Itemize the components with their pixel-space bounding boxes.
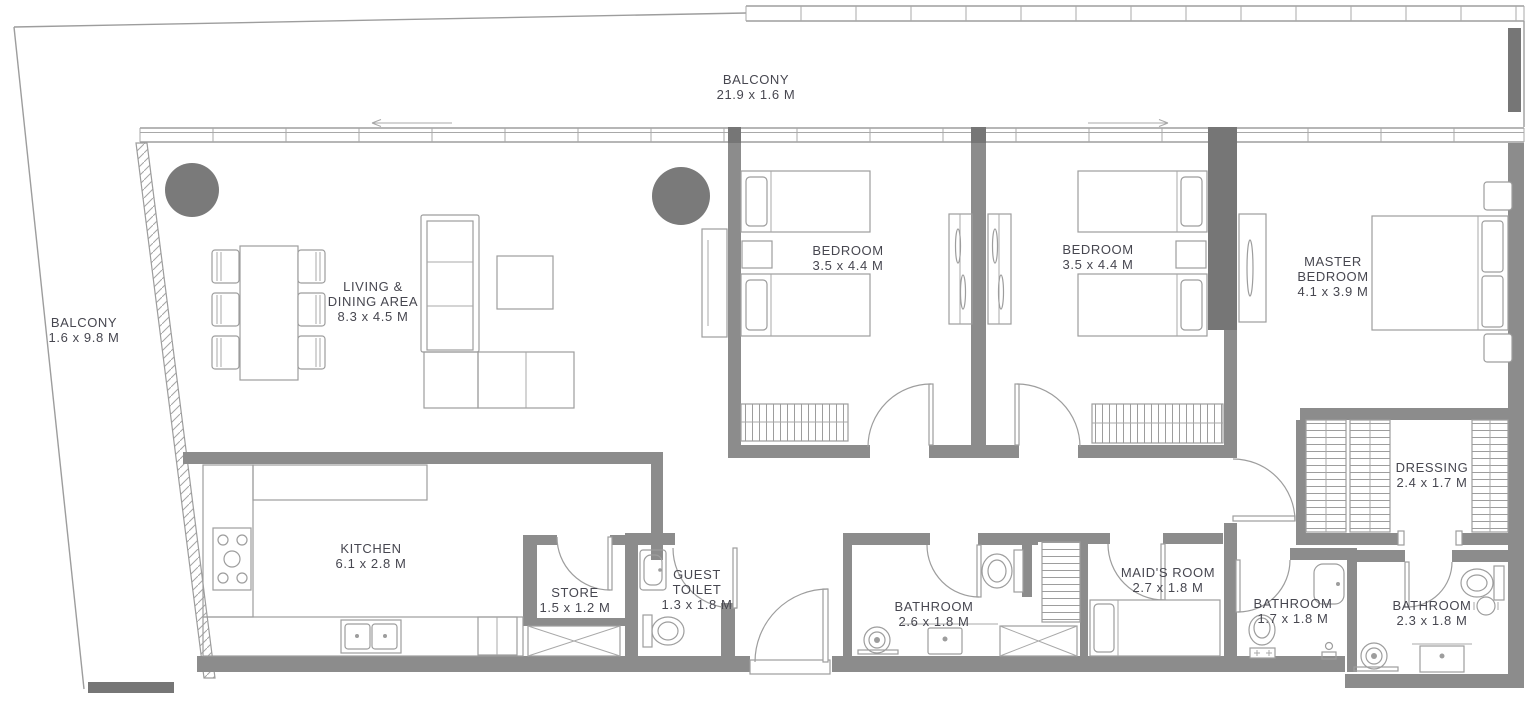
bedroom1-label: BEDROOM <box>812 243 883 258</box>
dressing-left-wall <box>1296 420 1306 533</box>
master-bedroom-furniture <box>1239 182 1512 362</box>
store-fixtures <box>528 626 620 656</box>
entrance-door-leaf <box>823 589 828 662</box>
north-window-band <box>140 120 1524 152</box>
bedroom1-nightstand <box>742 241 772 268</box>
shaft-top-wall <box>1038 533 1082 542</box>
left-balcony-end-wall <box>88 682 174 693</box>
floor-plan-drawing: BALCONY 21.9 x 1.6 M BALCONY 1.6 x 9.8 M… <box>0 0 1537 704</box>
bedroom2-furniture <box>988 171 1223 443</box>
top-railing-rails <box>746 6 1524 21</box>
sliding-door-arrow-right <box>1088 120 1168 127</box>
dining-table <box>240 246 298 380</box>
balcony-top-label: BALCONY <box>723 72 789 87</box>
bedroom2-door-leaf <box>1015 384 1019 445</box>
bedroom1-door-swing <box>868 384 931 447</box>
living-dining-dims: 8.3 x 4.5 M <box>338 309 409 324</box>
bedroom2-door-swing <box>1017 384 1080 447</box>
master-tv-unit <box>1239 214 1266 322</box>
wall-master-hall-lower <box>1224 523 1237 672</box>
south-wall-west <box>197 656 750 672</box>
dressing-door-jamb-right <box>1456 531 1462 545</box>
maid-bed <box>1090 600 1220 656</box>
balcony-left-dims: 1.6 x 9.8 M <box>49 330 120 345</box>
wall-bedroom1-bedroom2 <box>971 143 986 445</box>
bedroom2-dims: 3.5 x 4.4 M <box>1063 257 1134 272</box>
master-nightstand-bottom <box>1484 334 1512 362</box>
bath-master-top-wall-b <box>1452 550 1508 562</box>
balcony-left-edge <box>14 27 84 689</box>
bath-master-top-wall-a <box>1357 550 1405 562</box>
kitchen-label: KITCHEN <box>340 541 401 556</box>
bathroom-maid-label: BATHROOM <box>1254 596 1333 611</box>
master-hall-door-swing <box>1233 459 1295 521</box>
bath-maid-door-leaf <box>1236 560 1240 612</box>
entrance-door-swing <box>755 589 828 662</box>
bedroom1-sliding-wardrobe <box>949 214 972 324</box>
master-bed <box>1372 216 1508 330</box>
bedroom1-wardrobe <box>741 404 848 441</box>
bathroom-main-wc <box>982 550 1023 592</box>
bathroom-master-label: BATHROOM <box>1393 598 1472 613</box>
living-dining-label-2: DINING AREA <box>328 294 418 309</box>
bath-main-door-leaf <box>977 545 981 597</box>
corridor-wall-a <box>728 445 870 458</box>
bedroom1-dims: 3.5 x 4.4 M <box>813 258 884 273</box>
kitchen-dims: 6.1 x 2.8 M <box>336 556 407 571</box>
top-railing-posts <box>746 6 1524 21</box>
maids-room-label: MAID'S ROOM <box>1121 565 1215 580</box>
bathroom-main-dims: 2.6 x 1.8 M <box>899 614 970 629</box>
store-label: STORE <box>551 585 599 600</box>
guest-toilet-label-1: GUEST <box>673 567 721 582</box>
stove <box>213 528 251 590</box>
guest-toilet-door-leaf <box>733 548 737 608</box>
master-nightstand-top <box>1484 182 1512 210</box>
bathroom-master-vanity <box>1412 644 1472 672</box>
entrance-threshold <box>750 660 830 674</box>
structural-column-1 <box>165 163 219 217</box>
sofa <box>421 215 574 408</box>
maids-room-furniture <box>1090 600 1220 656</box>
corridor-wall-c <box>1078 445 1237 458</box>
dressing-bottom-wall-a <box>1296 533 1400 545</box>
balcony-left-label: BALCONY <box>51 315 117 330</box>
right-balcony-wall <box>1508 28 1521 112</box>
bath-main-door-swing <box>927 545 979 597</box>
maid-top-wall-b <box>1163 533 1223 544</box>
living-tv-unit <box>702 229 727 337</box>
wall-bedroom2-master <box>1208 150 1237 330</box>
balcony-top-dims: 21.9 x 1.6 M <box>717 87 796 102</box>
bedroom2-label: BEDROOM <box>1062 242 1133 257</box>
store-door-swing <box>557 537 610 590</box>
bedroom2-bed-a <box>1078 171 1207 232</box>
east-wall <box>1508 143 1524 688</box>
bedroom2-wardrobe <box>1092 404 1223 443</box>
bath-main-top-wall <box>852 533 930 545</box>
master-south-wall <box>1300 408 1524 420</box>
maids-room-dims: 2.7 x 1.8 M <box>1133 580 1204 595</box>
kitchen-sink <box>341 620 401 653</box>
store-top-wall-a <box>523 535 557 545</box>
structural-column-2 <box>652 167 710 225</box>
bathroom-master-dims: 2.3 x 1.8 M <box>1397 613 1468 628</box>
window-pier-1 <box>728 127 741 144</box>
kitchen-counter-bottom <box>203 617 523 656</box>
master-bedroom-label-1: MASTER <box>1304 254 1362 269</box>
store-dims: 1.5 x 1.2 M <box>540 600 611 615</box>
bedroom1-bed-b <box>741 274 870 336</box>
floor-plan-canvas: BALCONY 21.9 x 1.6 M BALCONY 1.6 x 9.8 M… <box>0 0 1537 704</box>
sliding-door-arrow-left <box>372 120 452 127</box>
maid-left-wall <box>1080 533 1088 672</box>
balcony-top-edge <box>14 13 746 27</box>
store-left-wall <box>523 535 537 620</box>
kitchen-counter-top <box>253 465 427 500</box>
kitchen-top-wall <box>183 452 663 464</box>
bath-main-left-wall <box>843 533 852 672</box>
service-shaft <box>1042 542 1080 622</box>
hall-fixtures <box>1000 542 1080 656</box>
bathroom-maid-dims: 1.7 x 1.8 M <box>1258 611 1329 626</box>
store-door-leaf <box>608 537 612 590</box>
south-wall-east <box>1345 674 1524 688</box>
wall-between-bathrooms <box>1347 548 1357 672</box>
dressing-door-jamb-left <box>1398 531 1404 545</box>
bedroom1-door-leaf <box>929 384 933 445</box>
bedroom1-bed-a <box>741 171 870 232</box>
bathroom-main-label: BATHROOM <box>895 599 974 614</box>
master-bedroom-dims: 4.1 x 3.9 M <box>1298 284 1369 299</box>
guest-toilet-label-2: TOILET <box>673 582 722 597</box>
master-hall-door-leaf <box>1233 516 1295 521</box>
guest-toilet-dims: 1.3 x 1.8 M <box>662 597 733 612</box>
guest-toilet-left-wall <box>625 533 638 672</box>
bathroom-master-shower <box>1354 643 1398 671</box>
bathroom-master-wc <box>1461 566 1504 600</box>
bedroom2-nightstand <box>1176 241 1206 268</box>
coffee-table <box>497 256 553 309</box>
guest-toilet-top-wall <box>625 533 675 545</box>
guest-wc <box>643 615 684 647</box>
bathroom-main-shower <box>858 627 898 654</box>
window-pier-2 <box>971 127 986 144</box>
refrigerator <box>478 617 517 655</box>
bedroom2-bed-b <box>1078 274 1207 336</box>
living-dining-label-1: LIVING & <box>343 279 403 294</box>
bedroom1-furniture <box>741 171 972 441</box>
store-bottom-wall <box>523 618 638 626</box>
dressing-label: DRESSING <box>1396 460 1469 475</box>
master-bedroom-label-2: BEDROOM <box>1297 269 1368 284</box>
wall-living-bedroom1 <box>728 143 741 445</box>
window-pier-3 <box>1208 127 1237 151</box>
living-dining-furniture <box>165 163 727 408</box>
dressing-dims: 2.4 x 1.7 M <box>1397 475 1468 490</box>
bedroom2-sliding-wardrobe <box>988 214 1011 324</box>
bath-maid-top-wall <box>1290 548 1357 560</box>
window-mullions <box>140 128 1524 142</box>
wall-master-hall-upper <box>1224 330 1237 445</box>
corridor-wall-b <box>929 445 1019 458</box>
